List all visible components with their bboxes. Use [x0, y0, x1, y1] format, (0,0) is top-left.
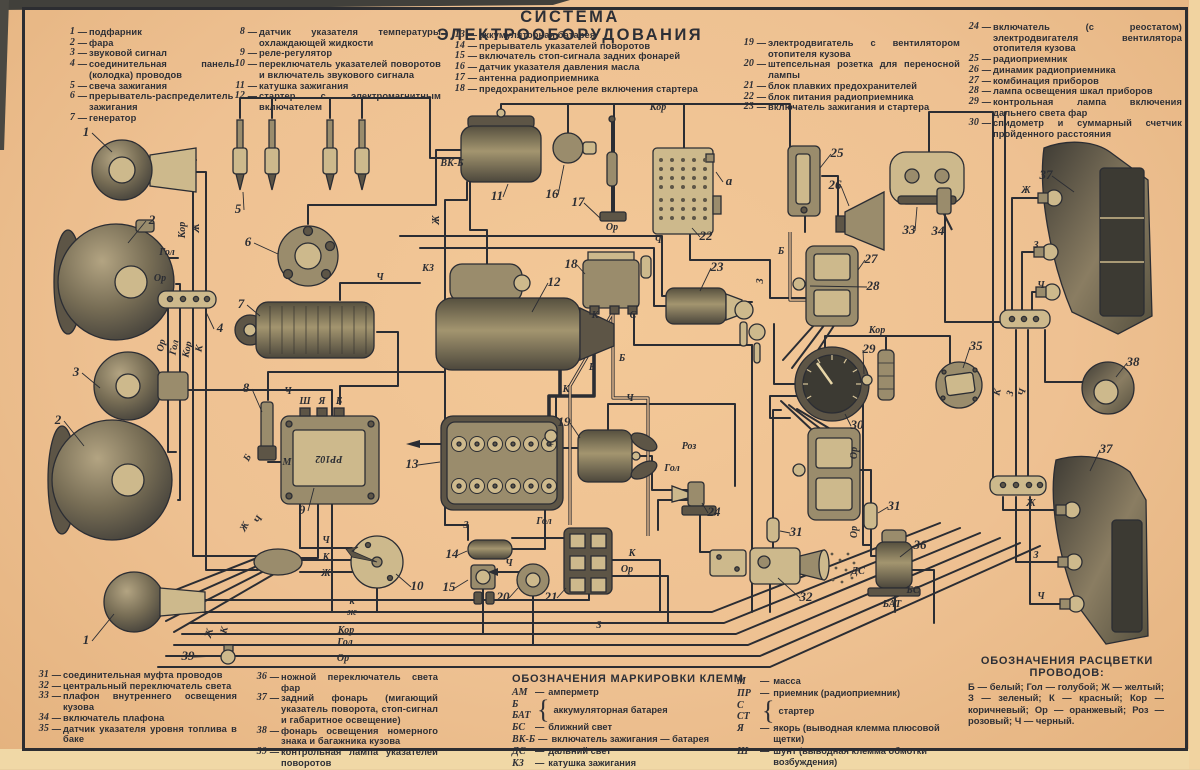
callout-number: 26: [828, 177, 843, 192]
radio-speaker: [836, 192, 884, 250]
callout-number: 27: [864, 251, 879, 266]
callout-number: 10: [411, 578, 425, 593]
callout-number: 12: [548, 274, 562, 289]
odometer-counter: [878, 350, 894, 400]
decor: [265, 148, 279, 174]
wire-label: Гол: [663, 463, 679, 474]
wire-label: Ш: [298, 396, 311, 407]
generator: [235, 302, 374, 358]
callout-number: 21: [544, 589, 558, 604]
wire-label: К: [562, 384, 571, 395]
decor: [692, 158, 696, 162]
decor: [475, 484, 479, 488]
wire-label: Ор: [621, 564, 633, 575]
callout-leader: [254, 243, 278, 254]
callout-leader: [584, 203, 600, 218]
wire-label: Гол: [158, 247, 174, 258]
wire-label: З: [1032, 550, 1038, 561]
wire-label: З: [1032, 240, 1038, 251]
wire-label: Ор: [154, 273, 166, 284]
decor: [659, 198, 663, 202]
connector-panel-right-lower: [990, 476, 1046, 495]
wire-label: З: [595, 620, 601, 631]
central-light-switch: [710, 548, 859, 584]
spark-plugs: [233, 120, 369, 190]
callout-number: 37: [1039, 167, 1054, 182]
decor: [847, 553, 850, 556]
decor: [703, 158, 707, 162]
decor: [841, 581, 844, 584]
callout-number: 31: [887, 498, 901, 513]
callout-number: 20: [496, 589, 511, 604]
decor: [457, 484, 461, 488]
wire-label: Ч: [626, 393, 634, 404]
radio-antenna: [600, 116, 626, 221]
decor: [835, 567, 838, 570]
decor: [237, 120, 243, 150]
turn-indicator-lamp: [221, 645, 235, 664]
starter-protection-relay: [583, 252, 639, 314]
callout-number: 36: [913, 537, 928, 552]
battery: [441, 416, 563, 510]
callout-leader: [716, 172, 723, 182]
wire-label: +: [548, 440, 554, 451]
decor: [692, 185, 696, 189]
callout-leader: [418, 462, 440, 465]
callout-number: 39: [181, 648, 196, 663]
decor: [670, 185, 674, 189]
wire-label: Гол: [336, 637, 352, 648]
decor: [703, 167, 707, 171]
dome-light: [890, 152, 964, 204]
callout-leader: [252, 389, 262, 412]
decor: [670, 198, 674, 202]
decor: [681, 167, 685, 171]
callout-leader: [557, 588, 566, 598]
callout-number: 37: [1099, 441, 1114, 456]
decor: [681, 185, 685, 189]
wire-coupler-a: [767, 518, 779, 542]
wire-label: Кор: [649, 102, 666, 113]
fuse-block: [564, 528, 612, 594]
decor: [326, 174, 334, 190]
wire-label: Ор: [849, 447, 860, 459]
decor: [670, 216, 674, 220]
wire-label: КЗ: [421, 263, 434, 274]
radio-receiver: [788, 146, 820, 216]
flasher-relay: [468, 540, 512, 559]
callout-number: 22: [699, 228, 714, 243]
wire-label: Ж: [431, 215, 442, 226]
radio-power-supply: [653, 148, 721, 234]
callout-number: 31: [789, 524, 803, 539]
decor: [233, 148, 247, 174]
callout-number: 8: [243, 380, 250, 395]
decor: [475, 442, 479, 446]
wire-label: Роз: [682, 441, 697, 452]
wire-label: К: [322, 552, 331, 563]
wire-label: Б: [335, 396, 343, 407]
callout-number: 2: [148, 212, 156, 227]
wire-label: РР102: [315, 453, 342, 464]
decor: [359, 120, 365, 150]
wire-label: Ч: [376, 272, 384, 283]
callout-number: 6: [245, 234, 252, 249]
callout-leader: [503, 184, 508, 197]
wire-label: Ор: [606, 222, 618, 233]
decor: [323, 148, 337, 174]
wire-label: Кор: [177, 222, 188, 239]
wire-label: БАТ: [882, 599, 902, 610]
callout-number: 29: [862, 341, 877, 356]
decor: [659, 167, 663, 171]
decor: [511, 442, 515, 446]
wire-label: Ч: [322, 535, 330, 546]
callout-number: а: [726, 173, 733, 188]
decor: [236, 174, 244, 190]
callout-number: 11: [491, 188, 503, 203]
wire-label: ВК-Б: [439, 158, 464, 169]
callout-number: 25: [830, 145, 845, 160]
wire-label: Ор: [849, 526, 860, 538]
wire-label: Ор: [337, 653, 349, 664]
decor: [547, 484, 551, 488]
wire-coupler-b: [864, 503, 877, 529]
decor: [851, 577, 854, 580]
callout-number: 16: [546, 186, 560, 201]
callout-number: 1: [83, 632, 90, 647]
ground-arrow-battery: [406, 440, 420, 448]
wire-label: К: [591, 310, 600, 321]
decor: [268, 174, 276, 190]
wire-label: К: [628, 548, 637, 559]
wire-label: Я: [318, 396, 327, 407]
decor: [659, 207, 663, 211]
decor: [681, 198, 685, 202]
callout-number: 23: [710, 259, 725, 274]
wire-label: Ор: [155, 338, 168, 352]
callout-leader: [396, 574, 411, 587]
wire-label: Ж: [320, 568, 331, 579]
wire-label: Ч: [252, 513, 265, 525]
decor: [327, 120, 333, 150]
wire-label: Ч: [1037, 280, 1045, 291]
decor: [670, 207, 674, 211]
wire-label: Б: [777, 246, 785, 257]
callout-number: 38: [1126, 354, 1141, 369]
decor: [659, 216, 663, 220]
decor: [269, 120, 275, 150]
wire-label: Ж: [237, 519, 252, 534]
instrument-cluster-lower: [793, 428, 860, 520]
decor: [703, 185, 707, 189]
decor: [853, 562, 856, 565]
wire-label: З: [1004, 389, 1016, 398]
connector-panel-left: [158, 291, 216, 308]
decor: [681, 207, 685, 211]
callout-leader: [206, 312, 214, 329]
decor: [845, 569, 848, 572]
callout-number: 13: [406, 456, 420, 471]
ignition-coil: [461, 109, 541, 182]
wire-label: Гол: [535, 516, 551, 527]
decor: [839, 559, 842, 562]
decor: [692, 207, 696, 211]
callout-leader: [780, 531, 790, 533]
oil-pressure-sensor: [553, 133, 596, 163]
decor: [681, 216, 685, 220]
wire-label: ж: [347, 607, 357, 618]
wire-label: З: [755, 278, 766, 284]
callout-number: 9: [299, 502, 306, 517]
wire-coupler-c: [641, 256, 651, 278]
callout-leader: [878, 507, 888, 513]
parking-light-front: [92, 140, 196, 200]
decor: [659, 185, 663, 189]
wire-label: Б: [588, 362, 596, 373]
decor: [670, 167, 674, 171]
decor: [703, 207, 707, 211]
callout-number: 4: [216, 320, 224, 335]
decor: [703, 216, 707, 220]
callout-leader: [509, 588, 518, 598]
wire-label: Кор: [868, 325, 885, 336]
decor: [457, 442, 461, 446]
decor: [692, 167, 696, 171]
ignition-switch: [666, 288, 765, 363]
callout-leader: [458, 551, 467, 555]
callout-leader: [243, 192, 244, 210]
decor: [493, 442, 497, 446]
fuel-level-sender: [936, 362, 982, 408]
poster-background: СИСТЕМА ЭЛЕКТРООБОРУДОВАНИЯ 1—подфарник2…: [0, 0, 1200, 769]
decor: [703, 198, 707, 202]
distributor: [278, 226, 338, 286]
decor: [358, 174, 366, 190]
wiring-diagram: 1232139456789101112131415161718192021222…: [0, 0, 1200, 769]
wire-label: Ж: [1025, 498, 1036, 509]
callout-leader: [455, 580, 468, 588]
wire-label: Ч: [505, 558, 513, 569]
wire-label: ДС: [850, 566, 865, 577]
decor: [703, 176, 707, 180]
speedometer: [795, 347, 872, 421]
decor: [529, 442, 533, 446]
wire-label: К: [193, 343, 206, 354]
wire-label: к: [349, 596, 355, 607]
decor: [659, 176, 663, 180]
decor: [355, 148, 369, 174]
connector-panel-right-upper: [1000, 310, 1050, 328]
wire-label: Ч: [654, 235, 662, 246]
decor: [692, 176, 696, 180]
wire-label: Б: [241, 452, 254, 464]
callout-number: 34: [931, 223, 946, 238]
callout-number: 1: [83, 124, 90, 139]
decor: [692, 216, 696, 220]
wire-label: Ч: [1037, 591, 1045, 602]
callout-number: 28: [866, 278, 881, 293]
callout-number: 32: [799, 589, 814, 604]
decor: [832, 579, 835, 582]
callout-leader: [558, 165, 564, 195]
wire-label: Ч: [284, 386, 292, 397]
wire-label: Кор: [337, 625, 354, 636]
wire-label: Ж: [191, 223, 202, 234]
callout-leader: [820, 154, 831, 168]
tail-light-left: [1053, 456, 1148, 644]
headlight-lower: [48, 420, 172, 540]
decor: [670, 176, 674, 180]
wire-label: Ж: [203, 627, 216, 640]
callout-number: 2: [54, 412, 62, 427]
decor: [670, 158, 674, 162]
callout-number: 14: [446, 546, 460, 561]
wire-label: Б: [618, 353, 626, 364]
callout-number: 3: [72, 364, 80, 379]
callout-number: 33: [902, 222, 917, 237]
wire-label: З: [462, 520, 468, 531]
callout-number: 5: [235, 201, 242, 216]
decor: [692, 198, 696, 202]
horn: [94, 352, 188, 420]
decor: [493, 484, 497, 488]
callout-leader: [841, 186, 849, 206]
callout-number: 30: [850, 417, 865, 432]
wire-label: БС: [905, 585, 919, 596]
wire-label: Ж: [1020, 185, 1031, 196]
callout-number: 24: [707, 504, 722, 519]
callout-number: 35: [969, 338, 984, 353]
decor: [659, 158, 663, 162]
wire-label: С: [630, 310, 637, 321]
decor: [511, 484, 515, 488]
callout-number: 15: [443, 579, 457, 594]
decor: [681, 176, 685, 180]
license-plate-light: [1082, 362, 1134, 414]
decor: [831, 553, 834, 556]
decor: [529, 484, 533, 488]
callout-number: 7: [238, 296, 245, 311]
decor: [681, 158, 685, 162]
callout-leader: [92, 614, 114, 641]
wire-label: М: [282, 457, 293, 468]
temperature-sensor: [258, 402, 276, 460]
callout-number: 17: [572, 194, 586, 209]
callout-number: 19: [558, 414, 572, 429]
callout-number: 18: [565, 256, 579, 271]
